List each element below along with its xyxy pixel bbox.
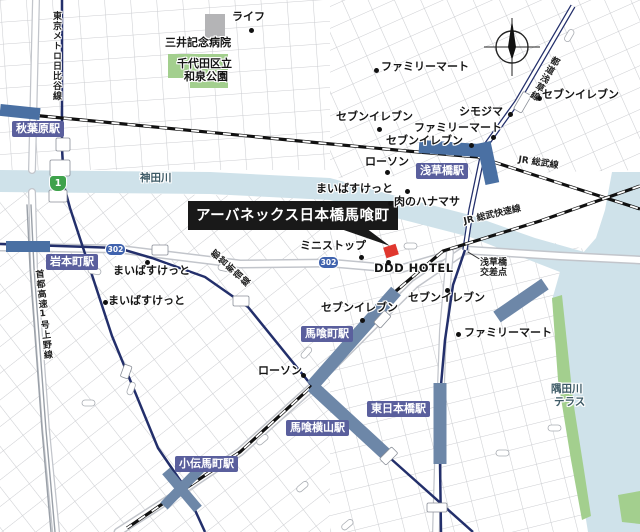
property-callout[interactable]: アーバネックス日本橋馬喰町	[188, 201, 398, 230]
poi-dot-marker	[249, 28, 254, 33]
map-label: セブンイレブン	[542, 89, 619, 100]
poi-dot-marker	[469, 143, 474, 148]
map-label: セブンイレブン	[386, 135, 463, 146]
station-label[interactable]: 浅草橋駅	[416, 163, 468, 179]
map-label: 肉のハナマサ	[394, 196, 460, 207]
station-label[interactable]: 岩本町駅	[46, 254, 98, 270]
map-label: 浅草橋	[480, 259, 507, 268]
poi-dot-marker	[377, 127, 382, 132]
poi-dot-marker	[145, 260, 150, 265]
map-label: ファミリーマート	[381, 61, 469, 72]
map-label: ミニストップ	[300, 240, 366, 251]
map-label: ローソン	[258, 365, 302, 376]
map-label: 神田川	[140, 173, 172, 184]
poi-dot-marker	[301, 373, 306, 378]
map-label: まいばすけっと	[108, 295, 185, 306]
station-label[interactable]: 小伝馬町駅	[175, 456, 238, 472]
poi-dot-marker	[103, 300, 108, 305]
map-label: DDD HOTEL	[374, 263, 454, 275]
route-shield: 302	[105, 243, 126, 256]
station-label[interactable]: 馬喰町駅	[301, 326, 353, 342]
map-label: ローソン	[365, 156, 409, 167]
map-label: ライフ	[232, 11, 265, 22]
poi-dot-marker	[537, 96, 542, 101]
map-label: 和泉公園	[184, 71, 228, 82]
poi-dot-marker	[359, 255, 364, 260]
map-label: 隅田川	[551, 384, 583, 395]
map-label: セブンイレブン	[336, 111, 413, 122]
poi-dot-marker	[405, 189, 410, 194]
map-label: シモジマ	[459, 106, 503, 117]
station-label[interactable]: 秋葉原駅	[12, 121, 64, 137]
route-shield: 1	[49, 175, 67, 192]
map-label: ファミリーマート	[414, 122, 502, 133]
poi-dot-marker	[388, 201, 393, 206]
poi-dot-marker	[445, 288, 450, 293]
map-label: 三井記念病院	[165, 37, 231, 48]
map-label: 交差点	[480, 269, 507, 278]
route-shield: 302	[318, 256, 339, 269]
poi-dot-marker	[491, 135, 496, 140]
poi-dot-marker	[360, 318, 365, 323]
poi-dot-marker	[385, 170, 390, 175]
map-label: まいばすけっと	[316, 183, 393, 194]
map-label: セブンイレブン	[321, 302, 398, 313]
station-label[interactable]: 馬喰横山駅	[286, 420, 349, 436]
poi-dot-marker	[386, 260, 391, 265]
station-label[interactable]: 東日本橋駅	[367, 401, 430, 417]
map-label: テラス	[554, 397, 585, 408]
poi-dot-marker	[456, 332, 461, 337]
poi-dot-marker	[508, 112, 513, 117]
map-label: まいばすけっと	[113, 265, 190, 276]
poi-dot-marker	[374, 68, 379, 73]
map-canvas[interactable]: アーバネックス日本橋馬喰町 ライフ三井記念病院千代田区立和泉公園ファミリーマート…	[0, 0, 640, 532]
map-label: セブンイレブン	[408, 292, 485, 303]
map-label: 千代田区立	[177, 58, 232, 69]
map-label: ファミリーマート	[464, 327, 552, 338]
map-label: 東京メトロ日比谷線	[51, 11, 60, 101]
